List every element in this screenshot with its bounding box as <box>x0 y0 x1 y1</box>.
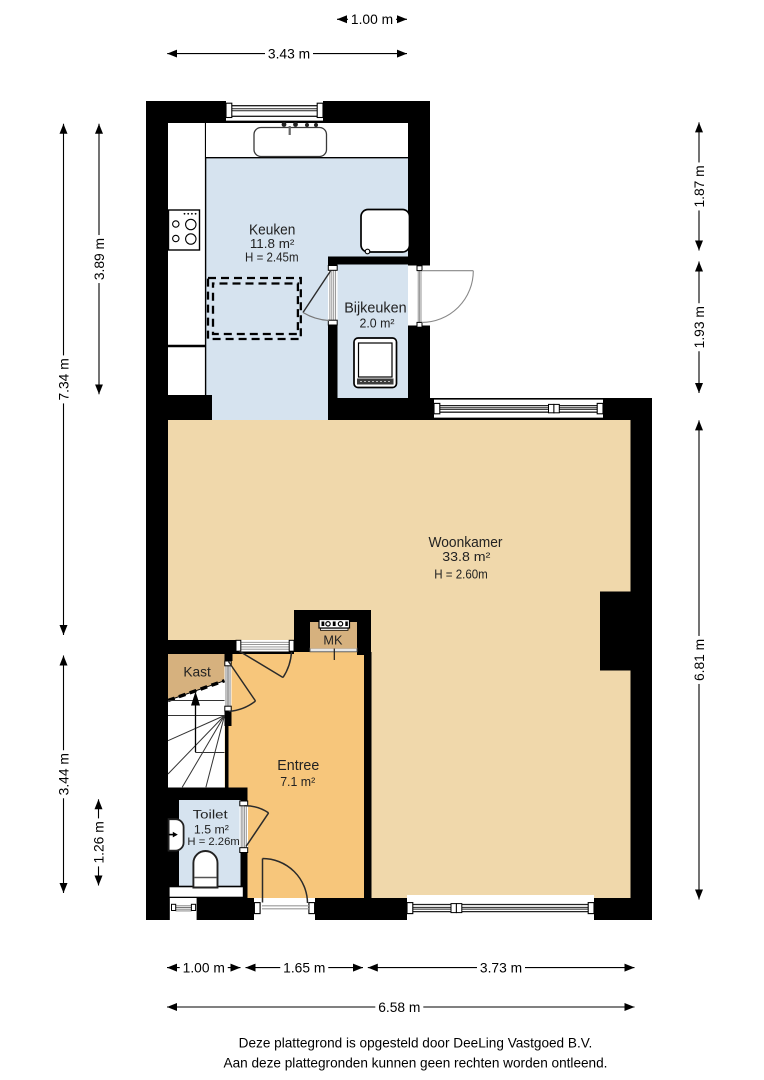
svg-text:3.43 m: 3.43 m <box>268 47 310 62</box>
svg-text:6.58 m: 6.58 m <box>378 1000 420 1015</box>
svg-text:1.93 m: 1.93 m <box>692 306 707 348</box>
svg-text:Aan deze plattegronden kunnen: Aan deze plattegronden kunnen geen recht… <box>224 1056 608 1071</box>
svg-text:3.44 m: 3.44 m <box>56 753 71 795</box>
svg-text:3.89 m: 3.89 m <box>92 238 107 280</box>
svg-text:7.1 m²: 7.1 m² <box>280 775 315 789</box>
svg-text:1.00 m: 1.00 m <box>351 12 393 27</box>
svg-text:11.8 m²: 11.8 m² <box>250 236 295 251</box>
svg-text:3.73 m: 3.73 m <box>480 961 522 976</box>
svg-text:33.8 m²: 33.8 m² <box>442 549 491 564</box>
svg-text:1.65 m: 1.65 m <box>283 961 325 976</box>
svg-text:6.81 m: 6.81 m <box>692 639 707 681</box>
svg-text:Toilet: Toilet <box>193 807 229 821</box>
svg-text:H = 2.60m: H = 2.60m <box>434 567 488 581</box>
svg-text:Bijkeuken: Bijkeuken <box>344 300 406 316</box>
svg-text:H = 2.26m: H = 2.26m <box>187 836 239 848</box>
svg-text:1.26 m: 1.26 m <box>91 821 106 863</box>
svg-text:1.00 m: 1.00 m <box>183 961 225 976</box>
svg-text:1.5 m²: 1.5 m² <box>194 823 229 836</box>
svg-text:2.0 m²: 2.0 m² <box>360 317 395 331</box>
svg-text:MK: MK <box>323 633 343 647</box>
svg-text:Entree: Entree <box>277 758 319 774</box>
svg-text:Deze plattegrond is opgesteld: Deze plattegrond is opgesteld door DeeLi… <box>239 1035 593 1050</box>
svg-text:H = 2.45m: H = 2.45m <box>245 251 299 265</box>
svg-text:7.34 m: 7.34 m <box>56 358 71 400</box>
svg-text:Kast: Kast <box>183 664 211 680</box>
svg-text:1.87 m: 1.87 m <box>692 165 707 207</box>
